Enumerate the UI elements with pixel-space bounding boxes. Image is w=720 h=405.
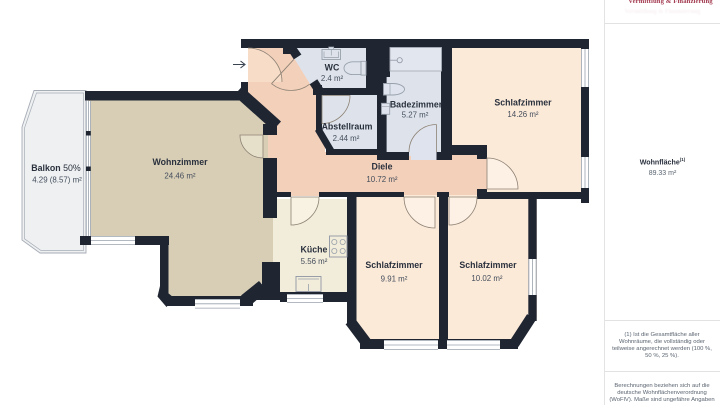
svg-text:Balkon 50%: Balkon 50% (31, 163, 81, 173)
svg-text:9.91 m²: 9.91 m² (381, 275, 408, 284)
svg-text:Schlafzimmer: Schlafzimmer (494, 98, 552, 108)
svg-text:WC: WC (325, 63, 340, 73)
svg-text:2.4 m²: 2.4 m² (321, 74, 344, 83)
svg-text:2.44 m²: 2.44 m² (333, 134, 360, 143)
svg-text:Badezimmer: Badezimmer (390, 100, 443, 110)
svg-text:10.72 m²: 10.72 m² (366, 175, 398, 184)
svg-text:10.02 m²: 10.02 m² (471, 274, 503, 283)
svg-text:Schlafzimmer: Schlafzimmer (459, 260, 517, 270)
svg-text:Wohnzimmer: Wohnzimmer (152, 157, 208, 167)
svg-text:5.56 m²: 5.56 m² (301, 257, 328, 266)
svg-text:24.46 m²: 24.46 m² (164, 172, 196, 181)
svg-text:Küche: Küche (301, 245, 328, 255)
svg-text:5.27 m²: 5.27 m² (402, 111, 429, 120)
svg-text:4.29 (8.57) m²: 4.29 (8.57) m² (32, 176, 82, 185)
svg-text:Abstellraum: Abstellraum (322, 122, 373, 132)
svg-text:Schlafzimmer: Schlafzimmer (365, 260, 423, 270)
svg-text:14.26 m²: 14.26 m² (507, 110, 539, 119)
svg-text:Diele: Diele (371, 162, 392, 172)
